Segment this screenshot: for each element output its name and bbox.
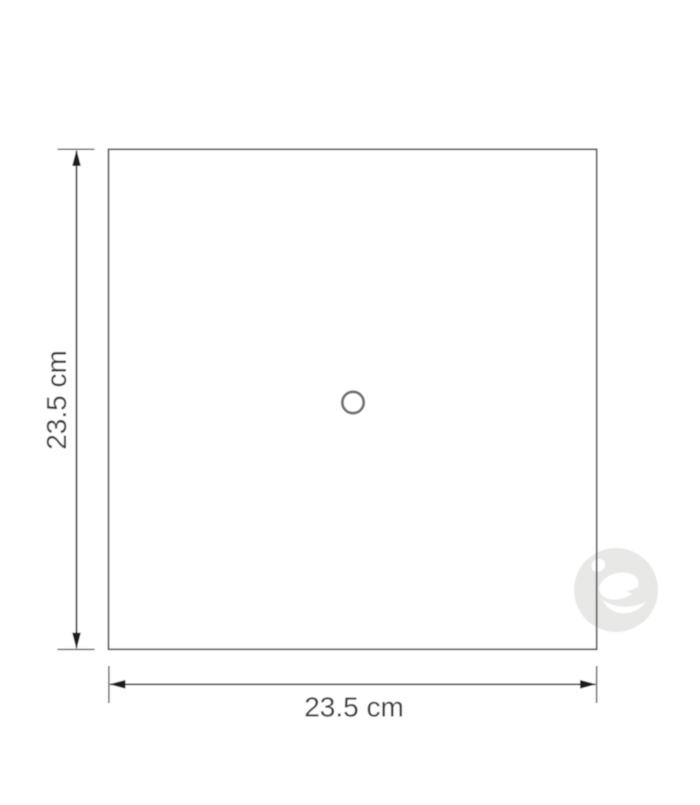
- svg-text:23.5 cm: 23.5 cm: [304, 692, 404, 723]
- svg-text:23.5 cm: 23.5 cm: [41, 350, 72, 450]
